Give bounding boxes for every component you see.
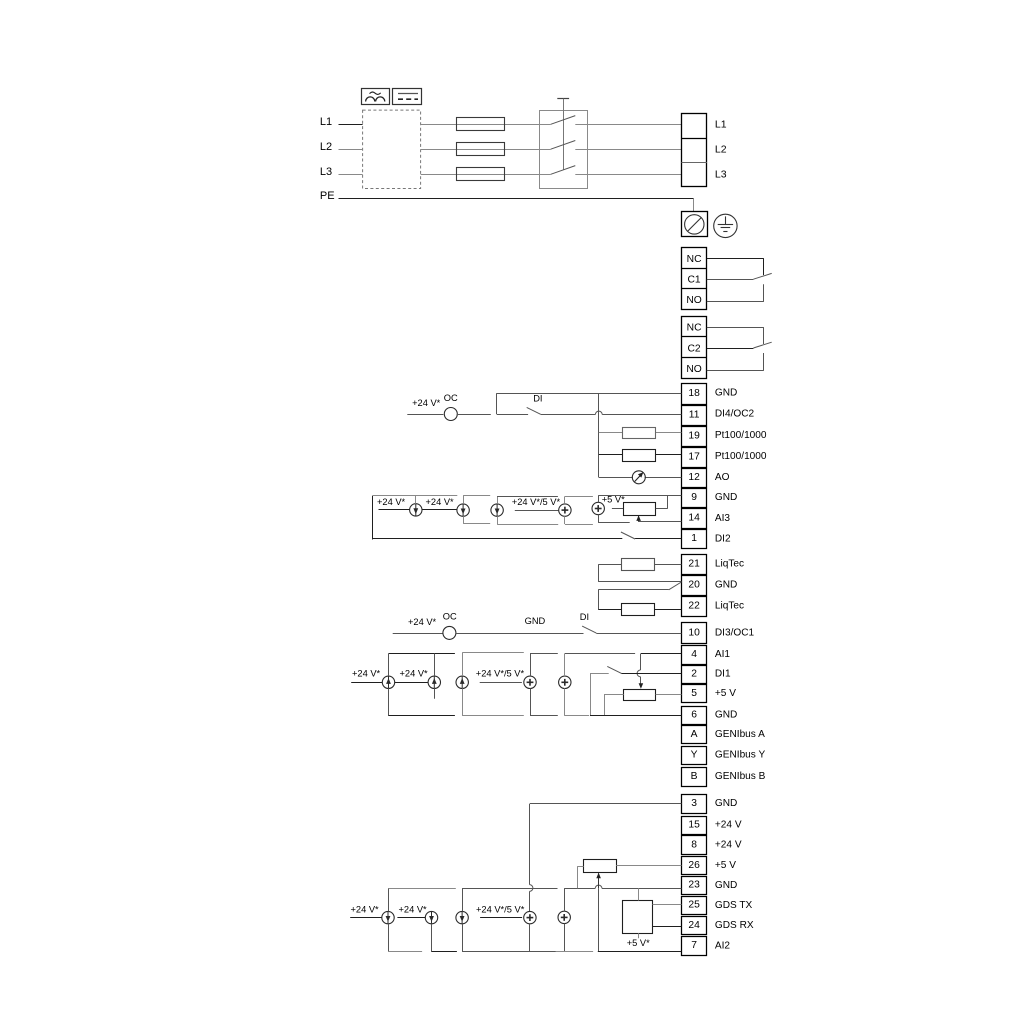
svg-text:25: 25 <box>688 900 700 911</box>
svg-text:+24 V*: +24 V* <box>377 497 406 507</box>
svg-text:GENIbus B: GENIbus B <box>715 771 766 782</box>
svg-text:+24 V*: +24 V* <box>399 904 428 914</box>
svg-text:4: 4 <box>691 649 697 660</box>
svg-text:2: 2 <box>691 668 697 679</box>
svg-text:+24 V*: +24 V* <box>408 617 437 627</box>
svg-text:AO: AO <box>715 472 730 483</box>
svg-text:10: 10 <box>688 627 700 638</box>
svg-text:DI: DI <box>580 612 589 622</box>
svg-text:+24 V*/5 V*: +24 V*/5 V* <box>476 904 525 914</box>
svg-text:GENIbus Y: GENIbus Y <box>715 750 766 761</box>
svg-text:+5 V*: +5 V* <box>627 938 650 948</box>
svg-text:21: 21 <box>688 559 700 570</box>
svg-text:L2: L2 <box>715 144 727 156</box>
svg-text:DI2: DI2 <box>715 534 731 545</box>
svg-text:Pt100/1000: Pt100/1000 <box>715 430 767 441</box>
svg-text:12: 12 <box>688 472 700 483</box>
svg-text:NC: NC <box>687 323 702 334</box>
svg-text:Y: Y <box>691 750 698 761</box>
svg-text:+24 V: +24 V <box>715 819 742 830</box>
svg-text:19: 19 <box>688 431 700 442</box>
svg-text:+24 V*: +24 V* <box>400 669 429 679</box>
svg-text:DI1: DI1 <box>715 668 731 679</box>
svg-text:GND: GND <box>525 616 546 626</box>
svg-text:LiqTec: LiqTec <box>715 559 744 570</box>
svg-text:+24 V*: +24 V* <box>351 904 380 914</box>
svg-text:C1: C1 <box>688 275 701 286</box>
svg-text:+5 V: +5 V <box>715 688 736 699</box>
svg-text:+24 V: +24 V <box>715 839 742 850</box>
svg-text:AI1: AI1 <box>715 649 731 660</box>
svg-text:DI4/OC2: DI4/OC2 <box>715 409 755 420</box>
svg-text:OC: OC <box>444 393 458 403</box>
svg-text:+24 V*/5 V*: +24 V*/5 V* <box>476 669 525 679</box>
svg-text:Pt100/1000: Pt100/1000 <box>715 451 767 462</box>
svg-text:15: 15 <box>688 819 700 830</box>
svg-text:24: 24 <box>688 920 700 931</box>
svg-text:L3: L3 <box>320 166 332 178</box>
svg-text:NO: NO <box>686 364 701 375</box>
svg-text:GDS RX: GDS RX <box>715 920 754 931</box>
svg-text:9: 9 <box>691 492 697 503</box>
svg-text:+24 V*: +24 V* <box>426 497 455 507</box>
svg-text:23: 23 <box>688 880 700 891</box>
svg-text:+5 V: +5 V <box>715 860 736 871</box>
svg-text:GENIbus A: GENIbus A <box>715 729 765 740</box>
svg-text:GDS TX: GDS TX <box>715 900 753 911</box>
svg-text:L2: L2 <box>320 141 332 153</box>
svg-text:20: 20 <box>688 580 700 591</box>
svg-text:17: 17 <box>688 452 700 463</box>
svg-text:22: 22 <box>688 600 700 611</box>
svg-text:DI3/OC1: DI3/OC1 <box>715 627 755 638</box>
svg-text:AI3: AI3 <box>715 513 731 524</box>
svg-text:C2: C2 <box>688 343 701 354</box>
svg-text:11: 11 <box>689 410 700 421</box>
svg-text:GND: GND <box>715 798 737 809</box>
svg-text:A: A <box>691 729 698 740</box>
svg-text:L3: L3 <box>715 169 727 181</box>
svg-text:26: 26 <box>688 860 700 871</box>
svg-text:NO: NO <box>686 295 701 306</box>
svg-text:+24 V*/5 V*: +24 V*/5 V* <box>512 497 561 507</box>
svg-text:14: 14 <box>688 513 700 524</box>
svg-text:L1: L1 <box>715 119 727 131</box>
svg-text:GND: GND <box>715 580 737 591</box>
svg-text:GND: GND <box>715 388 737 399</box>
svg-text:+24 V*: +24 V* <box>352 669 381 679</box>
svg-text:OC: OC <box>443 612 457 622</box>
svg-text:5: 5 <box>691 688 697 699</box>
svg-text:GND: GND <box>715 492 737 503</box>
svg-text:NC: NC <box>687 254 702 265</box>
svg-text:AI2: AI2 <box>715 940 731 951</box>
svg-text:6: 6 <box>691 710 697 721</box>
svg-text:L1: L1 <box>320 116 332 128</box>
svg-text:7: 7 <box>691 940 697 951</box>
svg-text:PE: PE <box>320 190 335 202</box>
svg-text:GND: GND <box>715 880 737 891</box>
svg-text:+24 V*: +24 V* <box>412 398 441 408</box>
svg-text:B: B <box>691 771 698 782</box>
svg-text:3: 3 <box>691 798 697 809</box>
svg-text:1: 1 <box>691 533 697 544</box>
svg-text:LiqTec: LiqTec <box>715 601 744 612</box>
svg-text:GND: GND <box>715 710 737 721</box>
svg-text:18: 18 <box>688 388 700 399</box>
svg-text:DI: DI <box>533 394 542 404</box>
svg-text:8: 8 <box>691 839 697 850</box>
